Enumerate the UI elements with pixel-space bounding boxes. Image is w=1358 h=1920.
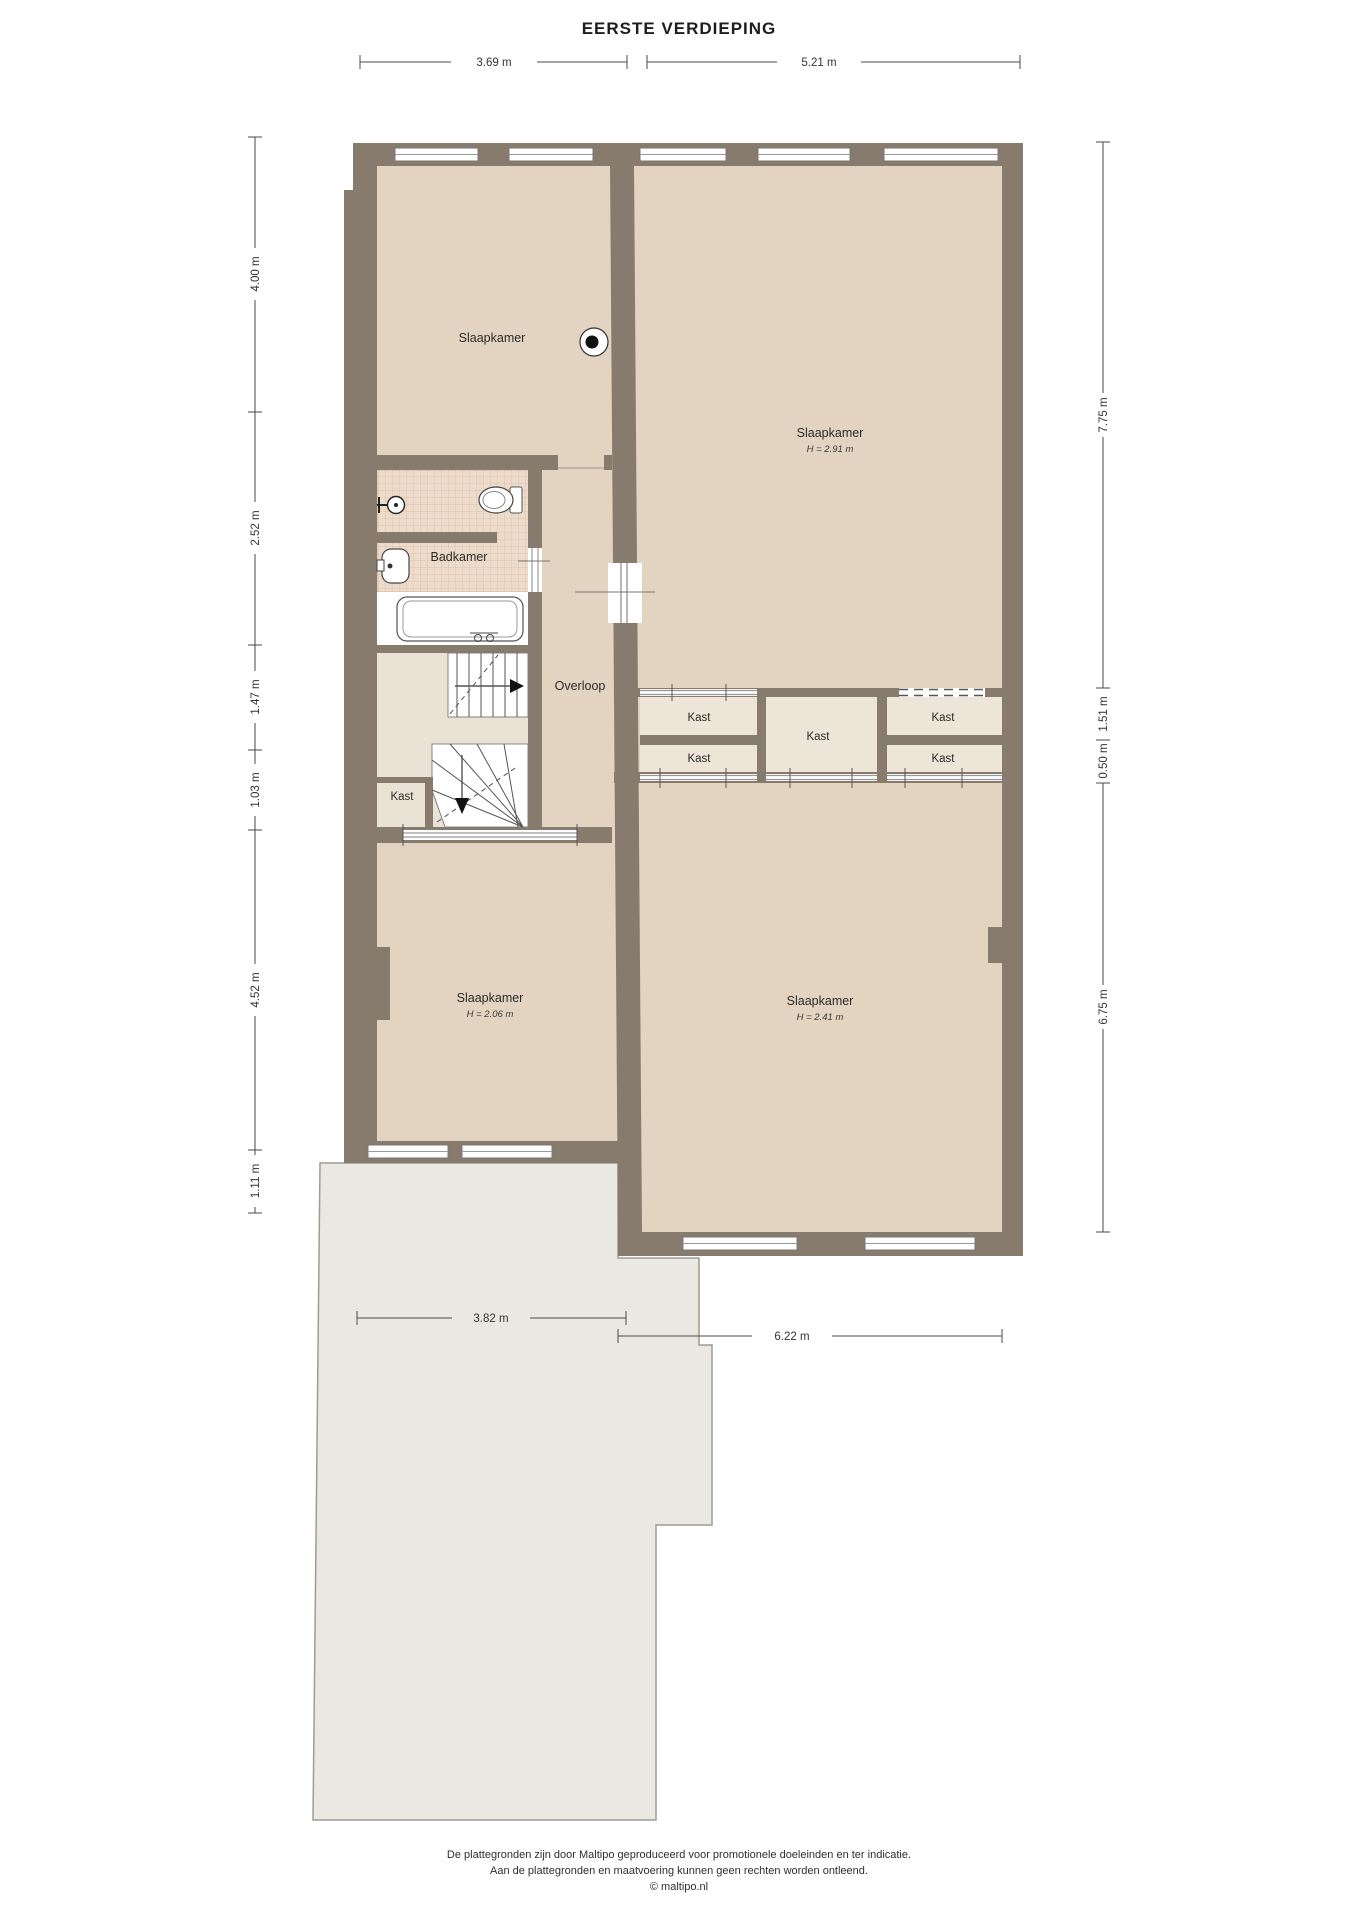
footer-line-1: De plattegronden zijn door Maltipo gepro…	[447, 1849, 911, 1861]
stairs-down-area	[432, 744, 528, 827]
dim-left-2: 2.52 m	[250, 510, 262, 545]
label-bathroom: Badkamer	[431, 550, 488, 564]
footer-line-3: © maltipo.nl	[650, 1881, 708, 1893]
label-bedroom-se-height: H = 2.41 m	[797, 1012, 844, 1023]
footer-line-2: Aan de plattegronden en maatvoering kunn…	[490, 1865, 868, 1877]
column-icon	[580, 328, 608, 356]
label-bedroom-ne: Slaapkamer	[797, 426, 864, 440]
dim-right-3: 0.50 m	[1098, 743, 1110, 778]
dim-right-1: 7.75 m	[1098, 397, 1110, 432]
dim-bottom-1: 3.82 m	[473, 1313, 508, 1325]
dim-left-4: 1.03 m	[250, 772, 262, 807]
floorplan-page: EERSTE VERDIEPING	[0, 0, 1358, 1920]
dim-right-4: 6.75 m	[1098, 989, 1110, 1024]
label-bedroom-sw-height: H = 2.06 m	[467, 1009, 514, 1020]
dim-left-6: 1.11 m	[250, 1164, 262, 1198]
dim-left-1: 4.00 m	[250, 256, 262, 291]
extension-area	[313, 1163, 712, 1820]
label-closet-3: Kast	[806, 731, 830, 743]
label-closet-2: Kast	[687, 753, 711, 765]
dim-bottom-2: 6.22 m	[774, 1331, 809, 1343]
label-closet-1: Kast	[687, 712, 711, 724]
label-closet-6: Kast	[390, 791, 414, 803]
label-bedroom-sw: Slaapkamer	[457, 991, 524, 1005]
label-bedroom-ne-height: H = 2.91 m	[807, 444, 854, 455]
footer: De plattegronden zijn door Maltipo gepro…	[447, 1849, 911, 1893]
label-bedroom-se: Slaapkamer	[787, 994, 854, 1008]
dim-right-2: 1.51 m	[1098, 696, 1110, 731]
page-title: EERSTE VERDIEPING	[582, 19, 777, 38]
bathtub-icon	[397, 597, 523, 642]
label-hallway: Overloop	[555, 679, 606, 693]
dim-top-1: 3.69 m	[476, 57, 511, 69]
label-bedroom-nw: Slaapkamer	[459, 331, 526, 345]
dim-left-5: 4.52 m	[250, 972, 262, 1007]
floorplan-drawing: EERSTE VERDIEPING	[0, 0, 1358, 1920]
label-closet-5: Kast	[931, 753, 955, 765]
label-closet-4: Kast	[931, 712, 955, 724]
toilet-icon	[479, 487, 522, 513]
dim-left-3: 1.47 m	[250, 679, 262, 714]
dim-top-2: 5.21 m	[801, 57, 836, 69]
